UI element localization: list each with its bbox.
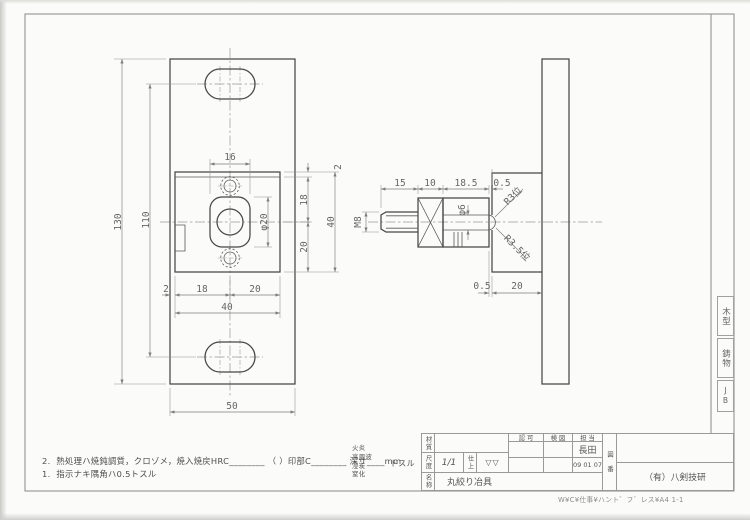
note-1: 1. 指示ナキ隅角ハ0.5トスル [42,468,156,480]
options-suffix: トスル [390,458,415,469]
side-notch [175,225,185,251]
scale-label: 尺度 [421,452,435,473]
dim-thread: M8 [353,216,364,228]
drawing-sheet: 130 110 50 2 18 20 40 2 18 20 40 [0,0,750,520]
dim-left-to-center: 18 [196,284,208,295]
dim-flange-thickness: 10 [424,178,436,189]
note-2-text: 熱処理ハ焼鈍調質，クロゾメ，焼入焼戻HRC________ （ ）印部C____… [56,456,401,466]
finish-marks: ▽▽ [476,452,509,473]
dim-gap-top: 0.5 [493,178,510,189]
sheet-border [25,14,734,491]
approval-date [508,457,544,473]
option-nitriding: 窒化 [352,470,372,479]
dim-gap-bottom: 0.5 [473,281,490,292]
dim-body-length: 18.5 [455,178,478,189]
front-view: 130 110 50 2 18 20 40 2 18 20 40 [113,48,344,416]
drawing-no-label: 図番 [602,433,617,491]
check-sign [543,441,573,458]
check-date [543,457,573,473]
edge-box-casting: 鋳物 [717,338,734,378]
dim-block-width: 40 [221,302,233,313]
plate-edge-outline [542,59,569,384]
scale-value: 1/1 [434,452,464,473]
approval-sign [508,441,544,458]
pin-round-tip [489,215,495,230]
edge-box-wood-pattern: 木型 [717,296,734,336]
dim-boss-dia: φ20 [259,213,270,230]
dim-slot-span: 110 [141,211,152,228]
note-2: 2. 熱処理ハ焼鈍調質，クロゾメ，焼入焼戻HRC________ （ ）印部C_… [42,455,401,467]
leader-tip-r2: R3.5位 [501,232,533,264]
dim-top-to-center: 18 [299,194,310,206]
note-2-number: 2. [42,456,51,466]
finish-label: 仕上 [463,452,477,473]
dim-overall-height: 130 [113,213,124,230]
file-path-note: W¥C¥仕事¥ハント゛フ゛レス¥A4 1-1 [558,494,684,504]
dim-stud-length: 15 [394,178,405,189]
dim-bracket-thickness: 20 [511,281,523,292]
option-induction: 高周波 [352,453,372,462]
charge-date: 09 01 07 [572,457,603,473]
dim-block-height: 40 [326,216,337,228]
material-label: 材質 [421,433,435,453]
charge-name: 長田 [572,441,603,458]
note-1-number: 1. [42,469,51,479]
dim-left-offset: 2 [163,284,169,295]
dim-boss-width: 16 [224,152,236,163]
side-view: 15 10 18.5 0.5 M8 φ6 R3位 R3.5位 0.5 20 [353,59,602,384]
note-1-text: 指示ナキ隅角ハ0.5トスル [56,469,156,479]
edge-box-jb: JB [717,380,734,412]
dim-top-offset: 2 [333,164,344,170]
company-name: （有）八剣技研 [616,462,734,491]
dim-center-to-right: 20 [249,284,261,295]
option-flame: 火炎 [352,444,372,453]
dim-center-to-bottom: 20 [299,241,310,253]
base-plate-outline [170,59,295,384]
dim-pin-dia: φ6 [457,204,468,216]
dim-overall-width: 50 [226,401,238,412]
heat-treat-options: 火炎 高周波 浸炭 窒化 [352,444,372,479]
part-name: 丸絞り冶具 [434,472,603,491]
drawing-no-value [616,433,734,463]
material-value [434,433,509,453]
name-label: 名称 [421,472,435,491]
